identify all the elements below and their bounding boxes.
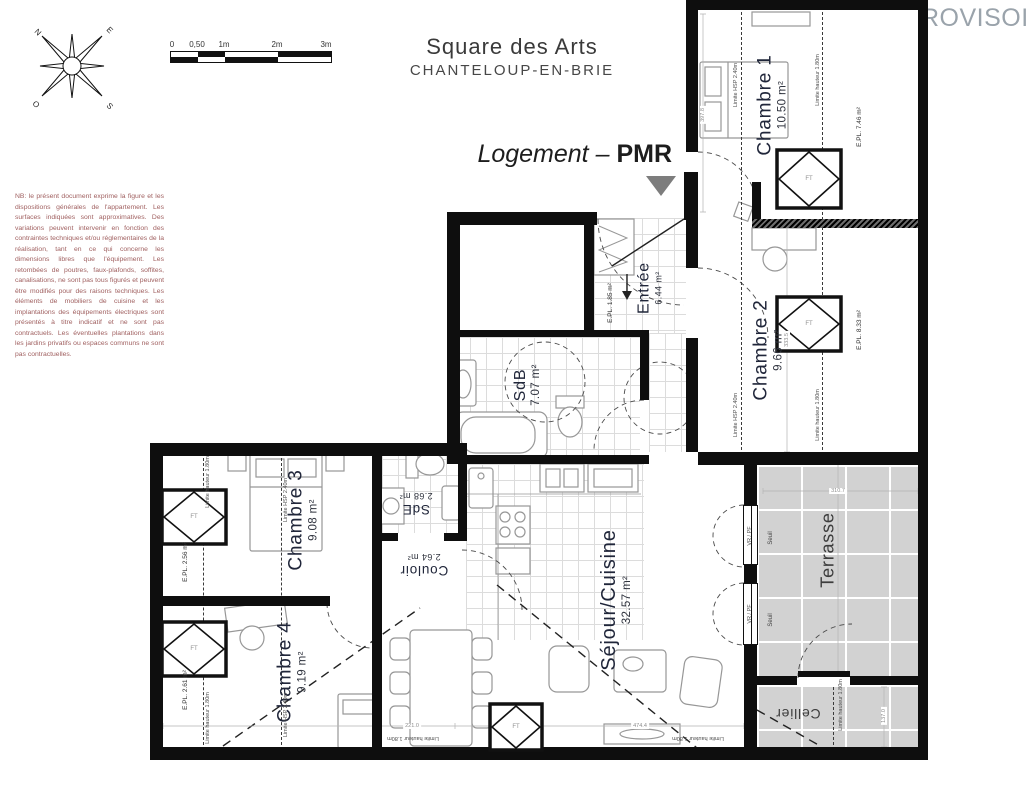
epl-label: E.PL. 8.33 m² [856,310,864,350]
room-label-couloir: Couloir 2.64 m² [400,552,448,578]
epl-label: E.PL. 2.56 m² [182,542,190,582]
wall [686,220,698,268]
room-area: 9.19 m² [296,651,309,693]
wall [447,212,597,225]
epl-label: E.PL. 7.46 m² [856,107,864,147]
wall [686,0,698,152]
limite-hauteur-label: Limite hauteur 1.80m [205,692,211,744]
wall [447,212,460,463]
vrpf-label: VR / PF [747,604,753,623]
wall-hatched [752,219,918,228]
room-name: Chambre 1 [754,54,776,155]
unit-type-label: Logement – PMR [477,140,672,169]
entrance-marker-triangle-icon [646,176,676,196]
compass-rose-icon: N E S O [22,16,122,116]
room-area: 6.44 m² [654,271,664,304]
wall [163,596,330,606]
scale-1m: 1m [218,40,229,49]
floorplan-page: Square des Arts CHANTELOUP-EN-BRIE Logem… [0,0,1028,800]
room-label-chambre4: Chambre 4 9.19 m² [274,621,309,722]
scale-bar: 0 0,50 1m 2m 3m [170,40,332,63]
wall [686,0,928,10]
ft-label: FT [805,321,812,327]
roof-window-ft-icon: FT [160,488,228,546]
room-area: 2.68 m² [399,491,432,501]
wall [744,565,757,583]
wall [744,465,757,507]
room-name: Couloir [400,562,448,578]
room-name: Chambre 2 [750,299,772,400]
ft-label: FT [512,724,519,730]
wall [447,455,649,464]
corridor-floor [649,333,686,452]
room-label-chambre3: Chambre 3 9.08 m² [285,469,320,570]
compass-s: S [105,101,115,111]
dimension-label: 474.4 [631,723,649,729]
room-label-sde: SdE 2.68 m² [399,491,432,517]
wall [684,172,698,220]
ft-label: FT [805,176,812,182]
limite-line [741,12,742,450]
room-label-cellier: Cellier [775,706,820,722]
room-name: Cellier [775,706,820,722]
room-area: 10.50 m² [776,81,789,130]
roof-window-ft-icon: FT [160,620,228,678]
limite-hauteur-label: Limite hauteur 1.80m [815,54,821,106]
limite-hauteur-label: Limite hauteur 1.80m [387,735,439,741]
room-name: Entrée [636,262,654,314]
room-area: 32.57 m² [621,576,634,625]
wall [447,330,649,337]
room-label-sdb: SdB 7.07 m² [512,364,544,406]
limite-hauteur-label: Limite hauteur 1.80m [838,679,844,731]
dimension-label: 310.7 [829,488,847,494]
compass-n: N [33,27,44,38]
room-name: Séjour/Cuisine [598,529,621,670]
wall [744,645,757,747]
page-subtitle: CHANTELOUP-EN-BRIE [410,62,614,79]
ft-label: FT [190,646,197,652]
seuil-label: Seuil [768,531,774,544]
unit-type-suffix: PMR [616,140,672,168]
provisional-watermark: ROVISOIRE [921,4,1028,33]
ft-label: FT [190,514,197,520]
roof-window-ft-icon: FT [488,702,544,752]
room-label-entree: Entrée 6.44 m² [636,262,665,314]
scale-3m: 3m [320,40,331,49]
scale-0: 0 [170,40,174,49]
unit-type-prefix: Logement – [477,140,609,168]
wall [444,533,467,541]
scale-bar-graphic [170,51,332,63]
epl-label: E.PL. 1.85 m² [607,283,615,323]
room-area: 9.08 m² [307,499,320,541]
room-label-terrasse: Terrasse [818,512,839,587]
roof-window-ft-icon: FT [775,148,843,210]
wall [372,443,382,760]
wall [372,533,398,541]
scale-bar-labels: 0 0,50 1m 2m 3m [170,40,332,51]
limite-line [822,12,823,450]
epl-label: E.PL. 2.61 m² [182,670,190,710]
room-label-chambre2: Chambre 2 9.66 m² [750,299,785,400]
room-name: Terrasse [818,512,839,587]
room-name: SdE [402,501,430,517]
page-title: Square des Arts [426,34,598,60]
room-name: SdB [512,369,530,402]
room-label-chambre1: Chambre 1 10.50 m² [754,54,789,155]
wall [584,212,594,334]
wall [640,330,649,400]
limite-hsp-label: Limite HSP 2.40m [733,393,739,437]
limite-hauteur-label: Limite hauteur 1.80m [672,735,724,741]
dimension-label: 333.5 [784,331,790,349]
compass-e: E [105,25,115,35]
wall [850,676,918,685]
limite-hauteur-label: Limite hauteur 1.80m [815,389,821,441]
wall [150,443,460,456]
wall [698,452,928,465]
room-area: 2.64 m² [407,552,440,562]
dimension-label: 137.0 [881,707,887,725]
vrpf-label: VR / PF [747,526,753,545]
wall [757,676,797,685]
wall [686,338,698,452]
limite-hsp-label: Limite HSP 2.40m [283,478,289,522]
dimension-label: 221.0 [403,723,421,729]
cellar-door-leaf [798,671,850,677]
dimension-label: 397.8 [700,106,706,124]
wall [752,182,761,222]
legal-note: NB: le présent document exprime la figur… [15,192,164,361]
seuil-label: Seuil [768,613,774,626]
limite-hauteur-label: Limite hauteur 1.80m [205,456,211,508]
wall [458,443,467,540]
limite-line [833,687,834,745]
room-area: 7.07 m² [531,364,544,406]
compass-o: O [31,99,42,110]
scale-2m: 2m [271,40,282,49]
room-label-sejour-cuisine: Séjour/Cuisine 32.57 m² [598,529,634,670]
limite-hsp-label: Limite HSP 2.40m [283,693,289,737]
scale-050: 0,50 [189,40,205,49]
wall [918,0,928,465]
wall [918,455,928,760]
sdb-floor [454,337,640,455]
limite-hsp-label: Limite HSP 2.40m [733,63,739,107]
